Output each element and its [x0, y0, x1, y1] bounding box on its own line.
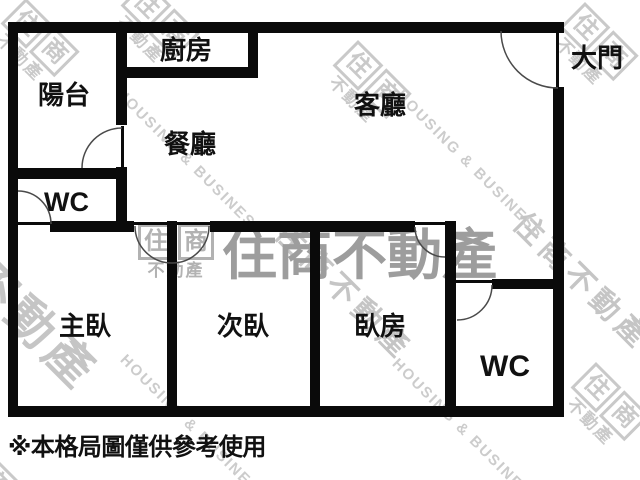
floor-plan: 住 商 不動產 住 商 不動產 住 商 不動產 住 商 不動產	[0, 0, 640, 480]
room-label-living: 客廳	[354, 92, 406, 118]
room-label-balcony: 陽台	[38, 82, 90, 108]
door-arc-balcony	[82, 128, 122, 168]
wall-outer-bottom	[8, 406, 564, 417]
wall-outer-left	[8, 22, 18, 417]
door-leaf-main-entrance	[556, 32, 559, 87]
door-leaf-wc-lower	[456, 280, 492, 283]
room-label-bedroom: 臥房	[354, 313, 406, 339]
room-label-master-bedroom: 主臥	[59, 313, 111, 339]
wall-master-second-divider	[167, 221, 177, 406]
wall-wc-lower-top	[492, 279, 553, 289]
room-label-wc-lower: WC	[480, 352, 530, 382]
door-leaf-second	[177, 222, 210, 225]
room-label-wc-upper: WC	[44, 189, 89, 216]
door-arc-second	[172, 226, 209, 263]
room-label-second-bedroom: 次臥	[217, 313, 269, 339]
door-arc-wc-lower	[457, 285, 492, 320]
wall-balcony-wc-divider	[8, 168, 127, 179]
wall-outer-right	[553, 87, 564, 417]
door-arc-main-entrance	[501, 31, 558, 88]
wall-balcony-right-upper	[116, 32, 127, 125]
wall-second-bedroom-divider	[310, 221, 320, 406]
floor-plan-walls	[0, 0, 640, 480]
room-label-kitchen: 廚房	[160, 37, 212, 63]
wall-middle-segment-1	[50, 221, 134, 232]
door-arc-master	[135, 226, 172, 263]
room-label-dining: 餐廳	[164, 131, 216, 157]
door-leaf-bedroom	[415, 222, 445, 225]
door-leaf-wc-upper	[18, 222, 51, 225]
wall-kitchen-right	[248, 32, 258, 72]
door-arc-bedroom	[415, 227, 445, 257]
door-leaf-lines	[18, 32, 559, 283]
door-leaf-master	[134, 222, 167, 225]
door-leaf-balcony	[121, 126, 124, 167]
wall-outer-top	[8, 22, 564, 33]
disclaimer-caption: ※本格局圖僅供參考使用	[8, 427, 266, 462]
wall-bedroom-wc-divider	[445, 221, 456, 406]
wall-kitchen-bottom	[116, 67, 258, 78]
room-label-main-door: 大門	[571, 45, 623, 71]
